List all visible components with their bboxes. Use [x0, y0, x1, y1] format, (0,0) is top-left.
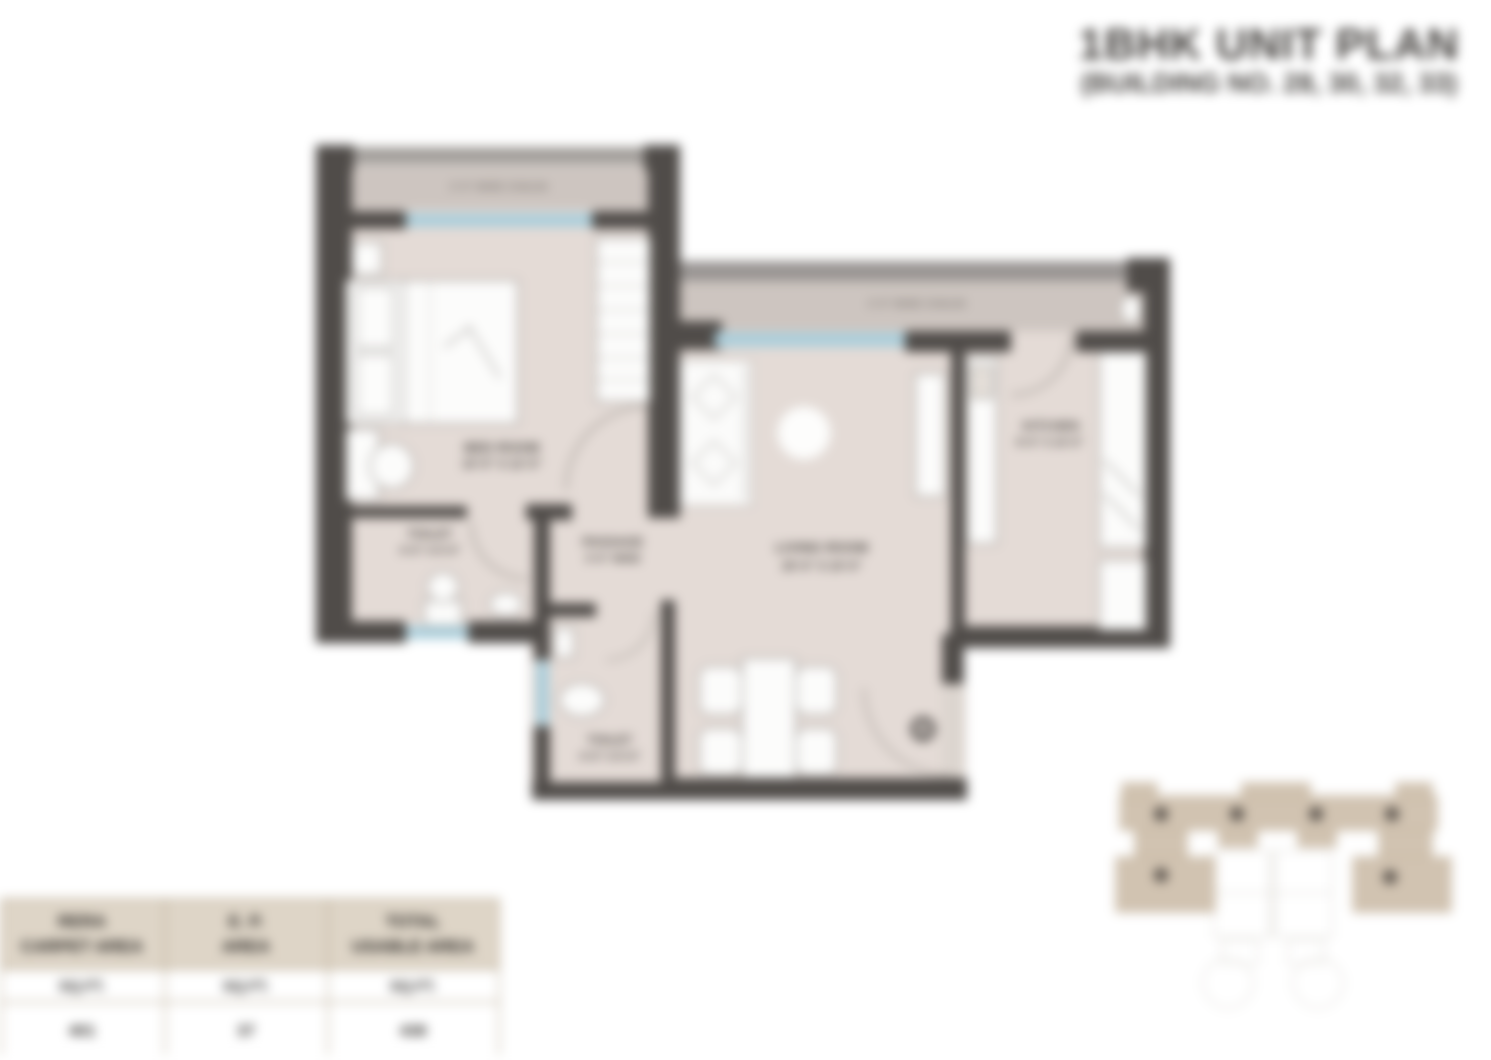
- svg-text:37: 37: [237, 1023, 255, 1040]
- svg-text:2: 2: [919, 722, 926, 737]
- svg-text:AREA: AREA: [222, 937, 270, 956]
- svg-text:E. P.: E. P.: [229, 912, 264, 931]
- svg-text:20'-0" X 10'-0": 20'-0" X 10'-0": [782, 559, 862, 573]
- svg-text:401: 401: [69, 1023, 96, 1040]
- svg-text:USABLE AREA: USABLE AREA: [352, 937, 474, 956]
- svg-text:TOILET: TOILET: [407, 527, 453, 541]
- svg-text:10'-0" X 12'-0": 10'-0" X 12'-0": [462, 457, 542, 471]
- svg-text:RERA: RERA: [58, 912, 106, 931]
- svg-text:4'-0" X 6'-0": 4'-0" X 6'-0": [580, 751, 641, 763]
- svg-text:TOTAL: TOTAL: [385, 912, 440, 931]
- svg-text:SQ.FT.: SQ.FT.: [59, 978, 106, 995]
- svg-text:4'-0" X 6'-0": 4'-0" X 6'-0": [400, 545, 461, 557]
- svg-text:KITCHEN: KITCHEN: [1023, 419, 1080, 433]
- svg-text:2'-0" WIDE CHAJJA: 2'-0" WIDE CHAJJA: [450, 182, 548, 193]
- svg-text:PASSAGE: PASSAGE: [582, 535, 643, 549]
- svg-text:1BHK UNIT PLAN: 1BHK UNIT PLAN: [1079, 20, 1460, 69]
- svg-text:8'-0" X 10'-0": 8'-0" X 10'-0": [1016, 437, 1083, 449]
- svg-text:3'-0" WIDE: 3'-0" WIDE: [585, 553, 641, 565]
- svg-text:(BUILDING NO. 28, 30, 32, 33): (BUILDING NO. 28, 30, 32, 33): [1081, 68, 1458, 98]
- svg-text:2'-0" WIDE CHAJJA: 2'-0" WIDE CHAJJA: [868, 299, 966, 310]
- svg-text:CARPET AREA: CARPET AREA: [21, 937, 143, 956]
- svg-text:TOILET: TOILET: [587, 733, 633, 747]
- svg-text:SQ.FT.: SQ.FT.: [223, 978, 270, 995]
- svg-text:BED ROOM: BED ROOM: [464, 440, 540, 455]
- svg-text:438: 438: [400, 1023, 427, 1040]
- svg-text:LIVING ROOM: LIVING ROOM: [776, 540, 869, 555]
- svg-text:SQ.FT.: SQ.FT.: [390, 978, 437, 995]
